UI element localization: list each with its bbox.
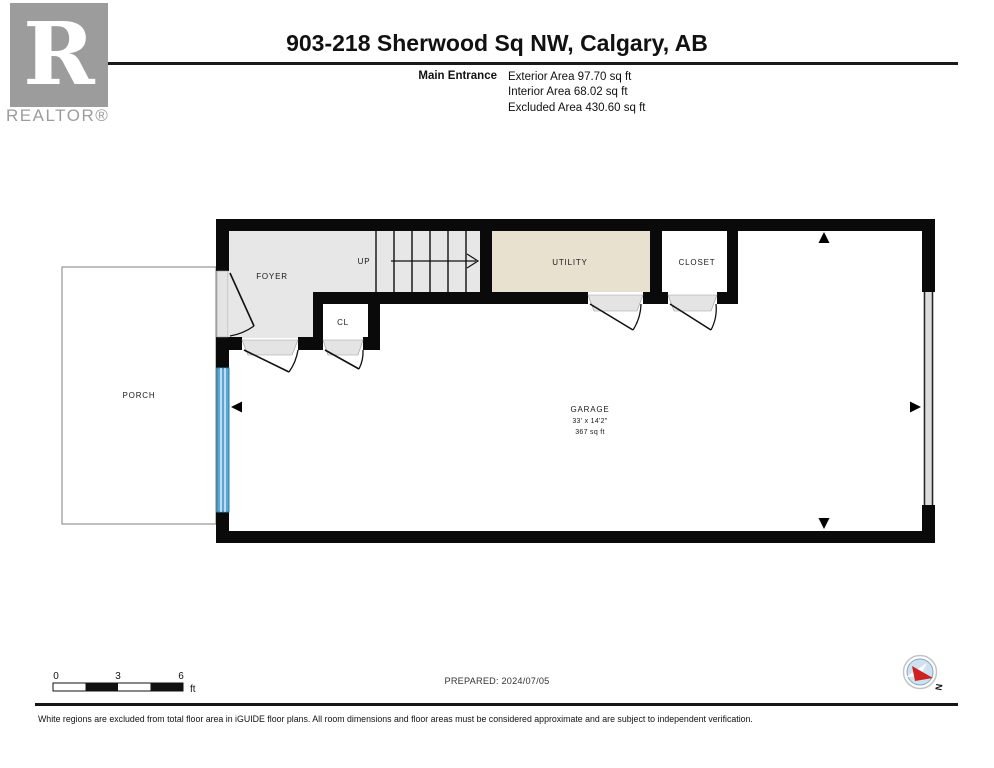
arrow-left-icon [231,402,242,413]
disclaimer-text: White regions are excluded from total fl… [38,714,753,724]
window-glass [217,368,229,512]
room-label-utility: UTILITY [552,258,587,267]
floorplan-drawing: FOYER UP UTILITY CLOSET CL PORCH GARAGE … [0,0,994,768]
page-title: 903-218 Sherwood Sq NW, Calgary, AB [0,30,994,57]
realtor-logo-letter: R [23,6,94,104]
prepared-date: PREPARED: 2024/07/05 [0,676,994,686]
room-label-cl: CL [337,318,349,327]
floorplan-page: R REALTOR® 903-218 Sherwood Sq NW, Calga… [0,0,994,768]
room-label-foyer: FOYER [256,272,288,281]
realtor-logo: R [10,3,108,107]
arrow-up-icon [819,232,830,243]
room-label-garage: GARAGE [570,405,609,414]
window-strip [217,368,229,512]
garage-dimensions: 33' x 14'2" [572,418,608,425]
footer-divider [35,703,958,706]
room-label-up: UP [358,257,371,266]
arrow-down-icon [819,518,830,529]
room-label-closet: CLOSET [679,258,716,267]
header-divider [33,62,958,65]
arrow-right-icon [910,402,921,413]
realtor-wordmark: REALTOR® [6,106,109,126]
room-label-porch: PORCH [123,391,156,400]
garage-door-opening [924,292,934,505]
garage-area: 367 sq ft [575,429,605,436]
